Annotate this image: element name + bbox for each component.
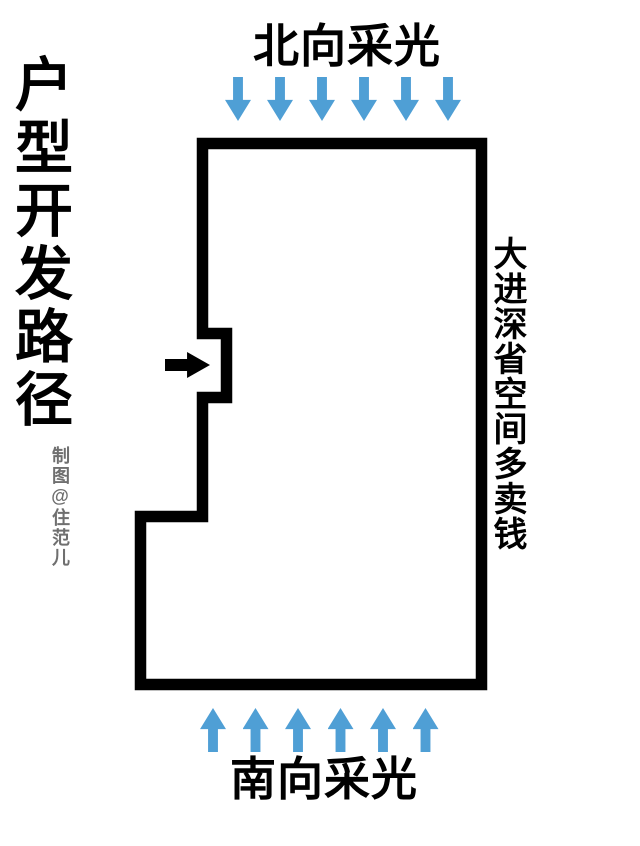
up-arrow-icon	[243, 708, 269, 752]
south-light-label: 南向采光	[230, 756, 418, 802]
up-arrow-icon	[285, 708, 311, 752]
depth-benefit-label: 大进深省空间多卖钱	[490, 236, 524, 551]
up-arrow-icon	[200, 708, 226, 752]
up-arrow-icon	[413, 708, 439, 752]
floor-plan-wall	[141, 144, 482, 685]
up-arrow-icon	[328, 708, 354, 752]
infographic-canvas: 户型开发路径 制图@住范儿 北向采光 大进深省空间多卖钱 南向采光	[0, 0, 640, 846]
south-light-arrows	[200, 708, 439, 752]
up-arrow-icon	[370, 708, 396, 752]
